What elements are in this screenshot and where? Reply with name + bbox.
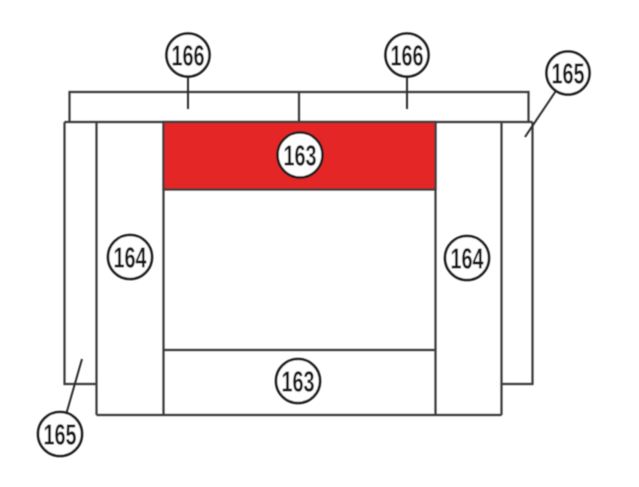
svg-text:163: 163 [282,367,315,399]
svg-text:166: 166 [172,41,205,73]
svg-text:165: 165 [44,420,77,452]
svg-text:165: 165 [552,59,585,91]
svg-text:164: 164 [114,243,147,275]
svg-text:166: 166 [391,41,424,73]
svg-text:163: 163 [284,141,317,173]
svg-text:164: 164 [451,244,484,276]
